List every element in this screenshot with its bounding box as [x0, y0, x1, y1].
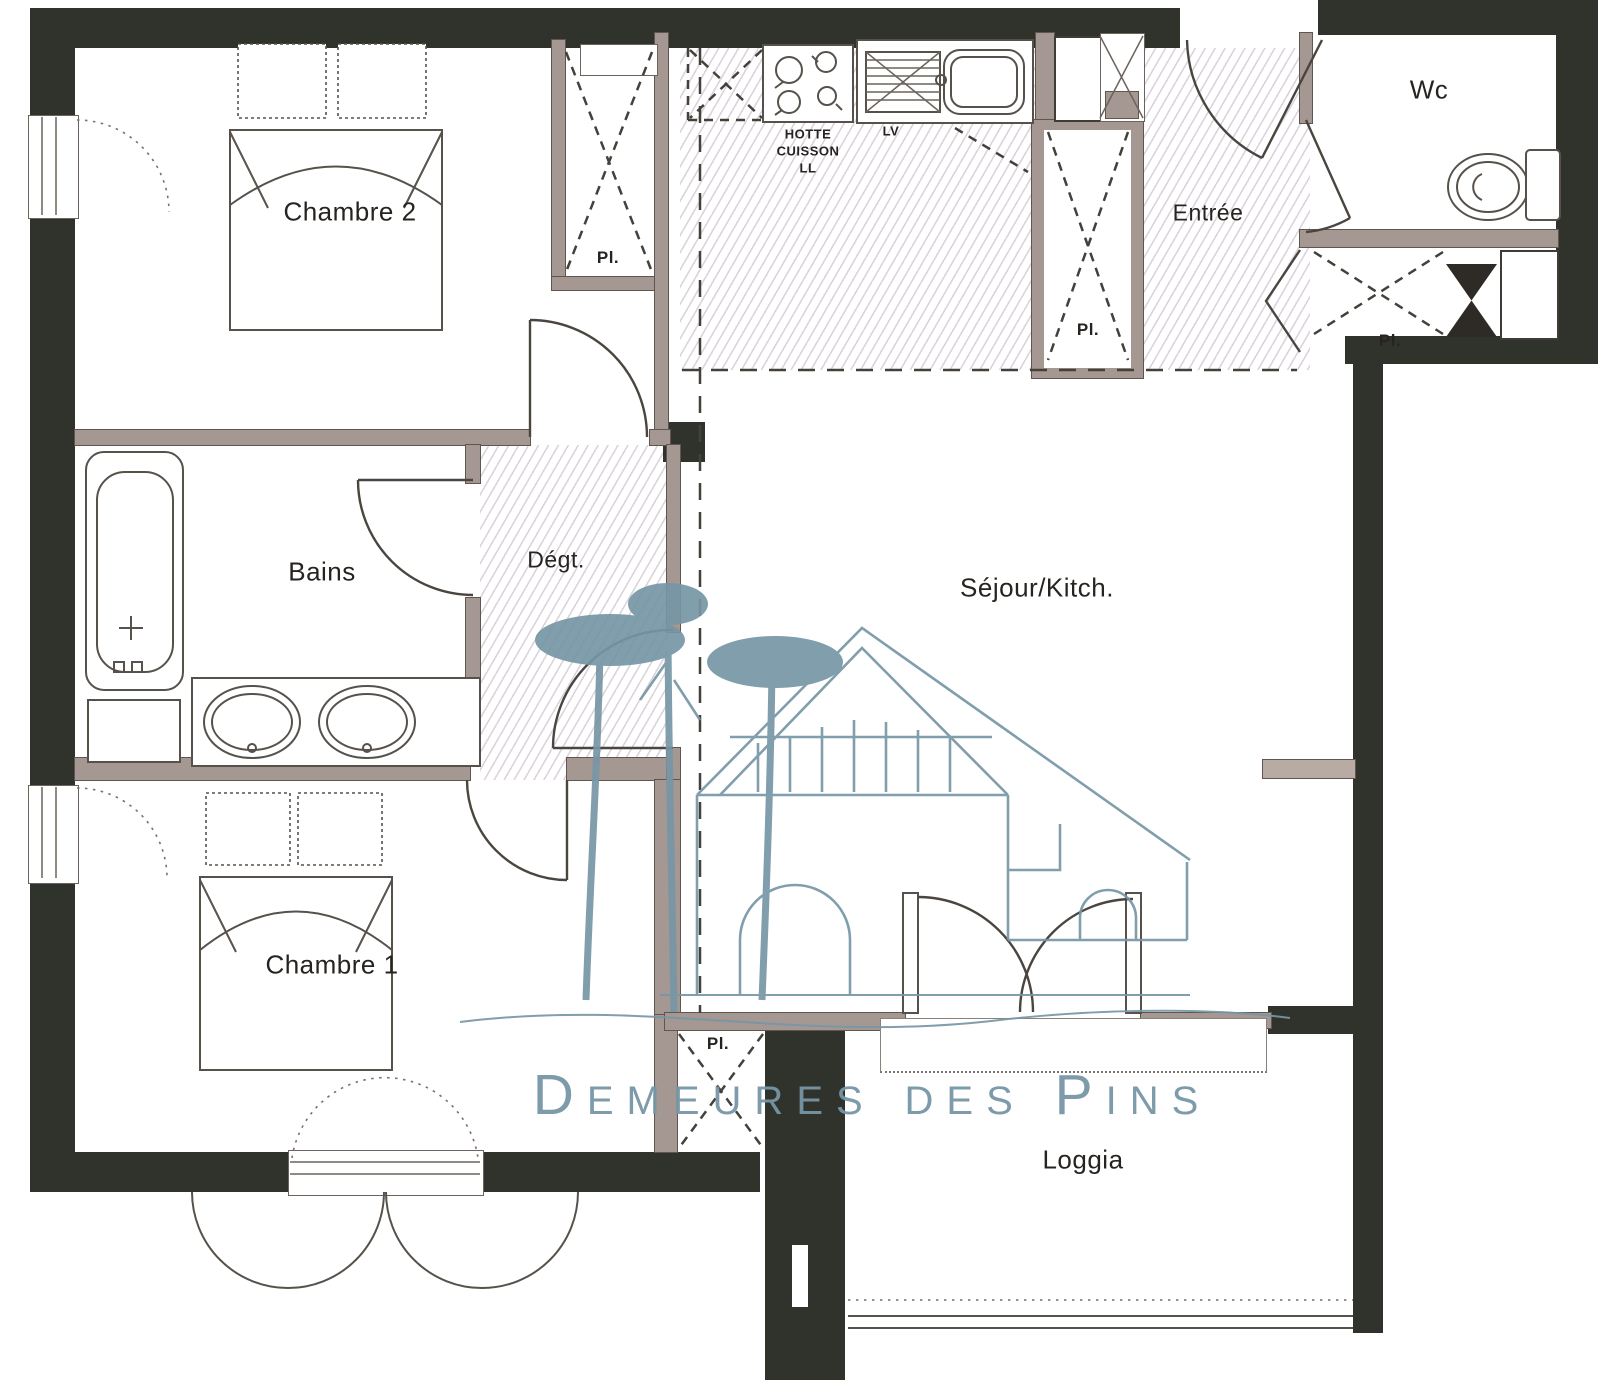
double-washbasin: [192, 678, 480, 766]
door-wc-closet-fold: [1266, 250, 1300, 352]
bed-chambre1: [200, 793, 392, 1070]
floor-plan: Chambre 2 Bains Dégt. Chambre 1 Séjour/K…: [0, 0, 1600, 1383]
door-bains: [358, 480, 473, 595]
closet-cross-wc: [1314, 252, 1443, 334]
room-label-sejour: Séjour/Kitch.: [960, 573, 1114, 604]
kitchen-hood-line3: LL: [777, 160, 840, 177]
dishwasher-label: LV: [883, 124, 900, 141]
room-label-degt: Dégt.: [527, 547, 584, 574]
kitchen-hood-line1: HOTTE: [777, 127, 840, 144]
room-label-bains: Bains: [288, 557, 356, 588]
closet-label-chambre2: Pl.: [597, 248, 619, 268]
watermark-logo: [460, 583, 1290, 1027]
top-closet-cross: [1100, 36, 1143, 118]
closet-label-kitchen: Pl.: [1077, 320, 1099, 340]
kitchen-limit-dashed-lines: [682, 48, 1297, 1013]
door-chambre2: [530, 320, 647, 437]
room-label-loggia: Loggia: [1042, 1145, 1123, 1176]
room-label-chambre1: Chambre 1: [265, 950, 398, 981]
plan-linework: [0, 0, 1600, 1383]
kitchen-hood-line2: CUISSON: [777, 144, 840, 161]
bathtub: [86, 452, 183, 762]
kitchen-hood-label: HOTTE CUISSON LL: [777, 127, 840, 178]
room-label-chambre2: Chambre 2: [283, 197, 416, 228]
closet-label-wc: Pl.: [1379, 331, 1401, 351]
closet-cross-chambre2: [566, 52, 652, 272]
watermark-text: Demeures des Pins: [432, 1062, 1312, 1128]
french-window-shutters: [192, 1192, 578, 1288]
toilet-icon: [1448, 150, 1560, 220]
door-chambre1: [467, 780, 567, 880]
room-label-entree: Entrée: [1173, 200, 1244, 227]
bed-chambre2: [230, 44, 442, 330]
closet-label-chambre1: Pl.: [707, 1034, 729, 1054]
water-heater-icon: [1446, 264, 1497, 337]
room-label-wc: Wc: [1410, 75, 1449, 106]
kitchen-sink-icon: [857, 40, 1033, 172]
door-wc: [1306, 120, 1350, 232]
loggia-railing: [848, 1300, 1353, 1328]
cooktop-icon: [763, 45, 853, 122]
door-entrance: [1187, 40, 1322, 158]
